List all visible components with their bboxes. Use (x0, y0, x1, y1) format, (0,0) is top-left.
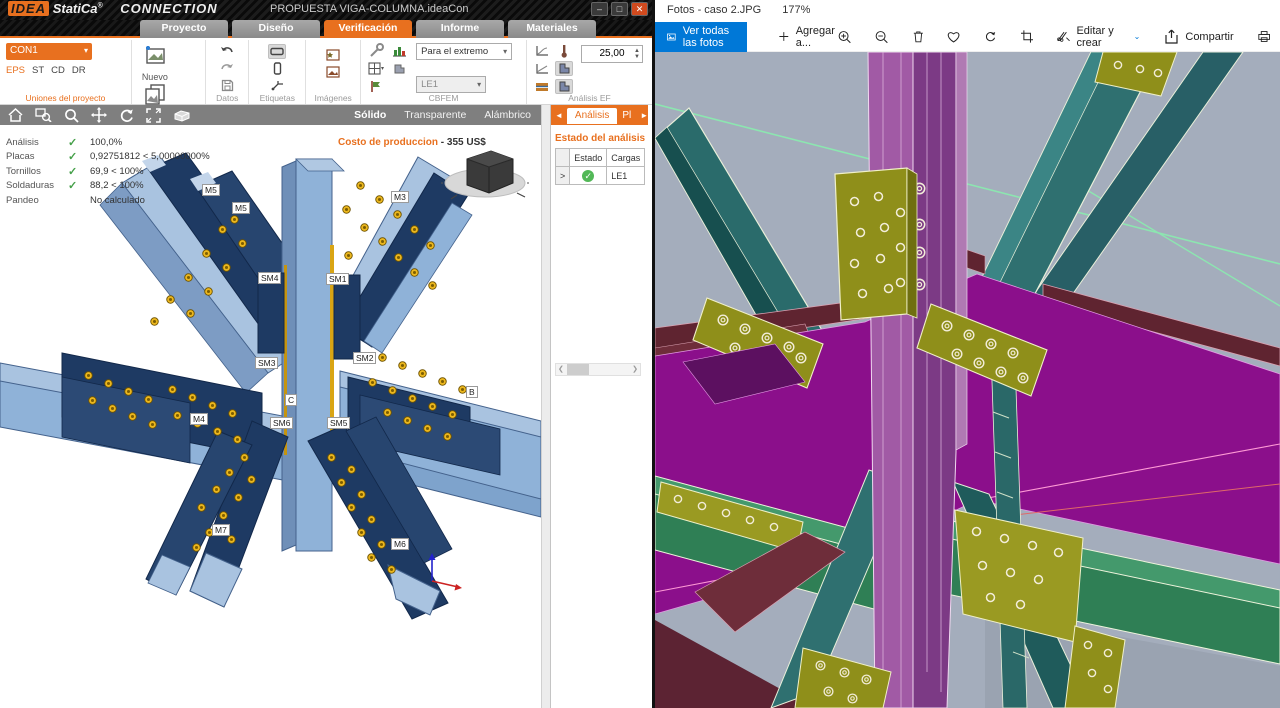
member-label[interactable]: M5 (202, 184, 220, 196)
mesh-grid-icon (368, 62, 385, 75)
fem-plot2-button[interactable] (533, 61, 551, 76)
new-image-icon (143, 44, 167, 66)
member-label[interactable]: SM2 (353, 352, 376, 364)
mode-cd[interactable]: CD (51, 65, 65, 76)
group-uniones: CON1▾ EPS ST CD DR Uniones del proyecto (0, 40, 132, 104)
status-row-soldaduras: Soldaduras✓88,2 < 100% (6, 179, 210, 194)
results-chart-button[interactable] (390, 43, 408, 58)
member-label[interactable]: SM4 (258, 272, 281, 284)
member-label[interactable]: C (285, 394, 297, 406)
panel-splitter[interactable] (541, 105, 551, 708)
member-label[interactable]: M4 (190, 413, 208, 425)
view-wireframe-button[interactable]: Alámbrico (484, 109, 531, 121)
share-icon (1164, 29, 1179, 44)
mesh-size-spinner[interactable]: 25,00 ▲ ▼ (581, 45, 643, 63)
fem-bars-button[interactable] (533, 79, 551, 94)
status-row-pandeo: PandeoNo calculado (6, 193, 210, 208)
plus-icon (779, 30, 789, 43)
member-label[interactable]: SM6 (270, 417, 293, 429)
panel-tab-placas[interactable]: Pl (617, 110, 636, 121)
idea-statica-window: IDEA StatiCa® CONNECTION PROPUESTA VIGA-… (0, 0, 655, 708)
zoom-out-icon[interactable] (875, 29, 888, 45)
see-all-photos-button[interactable]: Ver todas las fotos (655, 22, 747, 52)
chart-icon (392, 44, 407, 57)
col-estado: Estado (570, 149, 607, 167)
share-button[interactable]: Compartir (1164, 29, 1233, 44)
photos-toolbar: Ver todas las fotos Agregar a... Editar … (655, 22, 1280, 52)
redo-icon (220, 63, 234, 74)
redo-button[interactable] (218, 61, 236, 76)
idea-logo-mark: IDEA (8, 1, 49, 16)
zoom-window-icon[interactable] (35, 108, 52, 122)
edit-create-icon (1057, 30, 1070, 43)
photos-zoom-level: 177% (782, 4, 810, 16)
document-title: PROPUESTA VIGA-COLUMNA.ideaCon (270, 3, 468, 15)
add-to-button[interactable]: Agregar a... (779, 25, 838, 49)
group-datos: Datos (206, 40, 249, 104)
delete-icon[interactable] (913, 29, 924, 44)
status-row-analisis: Análisis✓100,0% (6, 135, 210, 150)
axis-line-icon (535, 63, 549, 75)
image-export-button[interactable] (324, 47, 342, 62)
new-connection-button[interactable]: Nuevo (138, 44, 172, 82)
home-icon[interactable] (8, 108, 23, 122)
panel-tab-analisis[interactable]: Análisis (567, 108, 617, 124)
navigation-cube[interactable] (439, 143, 531, 205)
tab-proyecto[interactable]: Proyecto (140, 20, 228, 38)
group-new-copy: Nuevo Copiar (132, 40, 206, 104)
image-star-icon (326, 49, 340, 61)
minimize-button[interactable]: – (591, 2, 608, 16)
member-icon (393, 62, 406, 75)
save-button[interactable] (218, 78, 236, 93)
image-gallery-button[interactable] (324, 64, 342, 79)
zoom-icon[interactable] (64, 108, 79, 123)
labels-axes-button[interactable] (268, 78, 286, 93)
ribbon: CON1▾ EPS ST CD DR Uniones del proyecto (0, 40, 652, 105)
ribbon-tabbar: Proyecto Diseño Verificación Informe Mat… (0, 20, 652, 38)
group-analisis-ef: 25,00 ▲ ▼ Análisis EF (527, 40, 652, 104)
zoom-fit-icon[interactable] (146, 108, 161, 123)
col-cargas: Cargas (607, 149, 645, 167)
thermometer-icon (560, 44, 568, 58)
analysis-panel: ◄ Análisis Pl ► Estado del análisis F Es… (551, 105, 648, 708)
idea-logo-text: StatiCa® (53, 1, 103, 16)
labels-horizontal-button[interactable] (268, 44, 286, 59)
photo-icon (667, 31, 676, 43)
rotate-icon[interactable] (119, 108, 134, 123)
wrench-icon (369, 43, 384, 58)
label-vertical-icon (273, 62, 282, 75)
view-transparent-button[interactable]: Transparente (404, 109, 466, 121)
member-label[interactable]: M6 (391, 538, 409, 550)
favorite-icon[interactable] (947, 30, 960, 44)
mode-dr[interactable]: DR (72, 65, 86, 76)
photos-title: Fotos - caso 2.JPG (667, 4, 761, 16)
connection-select[interactable]: CON1▾ (6, 43, 92, 60)
status-row-placas: Placas✓0,92751812 < 5,00000000% (6, 150, 210, 165)
view-solid-button[interactable]: Sólido (354, 109, 386, 121)
status-row-tornillos: Tornillos✓69,9 < 100% (6, 164, 210, 179)
solid-box-icon[interactable] (173, 109, 191, 122)
check-status-list: Análisis✓100,0% Placas✓0,92751812 < 5,00… (6, 135, 210, 208)
load-effect-dropdown[interactable]: LE1▾ (416, 76, 486, 93)
member-label[interactable]: M7 (212, 524, 230, 536)
label-horizontal-icon (270, 47, 284, 56)
member-label[interactable]: SM3 (255, 357, 278, 369)
panel-horizontal-scrollbar[interactable]: ❮ ❯ (555, 363, 641, 376)
member-label[interactable]: SM5 (327, 417, 350, 429)
group-cbfem: Para el extremo▾ LE1▾ CBFEM (361, 40, 527, 104)
spinner-down-icon[interactable]: ▼ (634, 54, 640, 60)
viewport-toolbar: Sólido Transparente Alámbrico (0, 105, 541, 125)
undo-icon (220, 46, 234, 57)
labels-vertical-button[interactable] (268, 61, 286, 76)
print-icon[interactable] (1258, 29, 1270, 44)
crop-icon[interactable] (1021, 29, 1033, 44)
close-button[interactable]: ✕ (631, 2, 648, 16)
idea-titlebar: IDEA StatiCa® CONNECTION PROPUESTA VIGA-… (0, 0, 652, 20)
fem-member2-icon (558, 80, 571, 93)
tab-verificacion[interactable]: Verificación (324, 20, 412, 38)
mesh-button[interactable] (367, 61, 385, 76)
member-button[interactable] (390, 61, 408, 76)
undo-button[interactable] (218, 44, 236, 59)
zoom-in-icon[interactable] (838, 29, 851, 45)
group-imagenes: Imágenes (306, 40, 361, 104)
fem-solid2-button[interactable] (555, 79, 573, 94)
analysis-row[interactable]: > ✓ LE1 (556, 167, 645, 185)
pan-icon[interactable] (91, 107, 107, 123)
load-case-cell: LE1 (607, 167, 645, 185)
maximize-button[interactable]: □ (611, 2, 628, 16)
tab-materiales[interactable]: Materiales (508, 20, 596, 38)
model-viewport[interactable]: Análisis✓100,0% Placas✓0,92751812 < 5,00… (0, 125, 541, 708)
axis-curve-icon (535, 45, 549, 57)
stacked-bars-icon (535, 81, 549, 93)
fem-plot1-button[interactable] (533, 43, 551, 58)
panel-title: Estado del análisis F (555, 133, 648, 144)
tab-informe[interactable]: Informe (416, 20, 504, 38)
fem-solid1-button[interactable] (555, 61, 573, 76)
fem-member-icon (558, 62, 571, 75)
status-ok-icon: ✓ (582, 170, 594, 182)
member-label[interactable]: SM1 (326, 273, 349, 285)
report-flag-button[interactable] (367, 79, 385, 94)
analysis-state-table: Estado Cargas > ✓ LE1 (555, 148, 645, 185)
idea-product-name: CONNECTION (120, 1, 217, 16)
photos-titlebar: Fotos - caso 2.JPG 177% (655, 0, 1280, 22)
mode-st[interactable]: ST (32, 65, 44, 76)
panel-tab-prev-icon[interactable]: ◄ (551, 111, 567, 120)
axes-leader-icon (271, 80, 284, 91)
rotate-photo-icon[interactable] (984, 29, 996, 44)
fem-temp-button[interactable] (555, 43, 573, 58)
mode-eps[interactable]: EPS (6, 65, 25, 76)
idea-logo: IDEA StatiCa® CONNECTION (8, 1, 218, 16)
flag-icon (370, 80, 383, 93)
save-icon (221, 79, 234, 92)
copy-icon (143, 83, 167, 105)
tab-diseno[interactable]: Diseño (232, 20, 320, 38)
member-label[interactable]: M3 (391, 191, 409, 203)
photos-window: Fotos - caso 2.JPG 177% Ver todas las fo… (655, 0, 1280, 708)
member-label[interactable]: B (466, 386, 478, 398)
member-label[interactable]: M5 (232, 202, 250, 214)
wrench-button[interactable] (367, 43, 385, 58)
extreme-dropdown[interactable]: Para el extremo▾ (416, 43, 512, 60)
edit-create-button[interactable]: Editar y crear ⌄ (1057, 25, 1140, 49)
image-icon (326, 66, 340, 78)
cad-photo[interactable] (655, 52, 1280, 708)
panel-tab-next-icon[interactable]: ► (636, 111, 652, 120)
chevron-down-icon: ⌄ (1134, 32, 1141, 41)
panel-tabstrip: ◄ Análisis Pl ► (551, 105, 648, 125)
group-etiquetas: Etiquetas (249, 40, 306, 104)
